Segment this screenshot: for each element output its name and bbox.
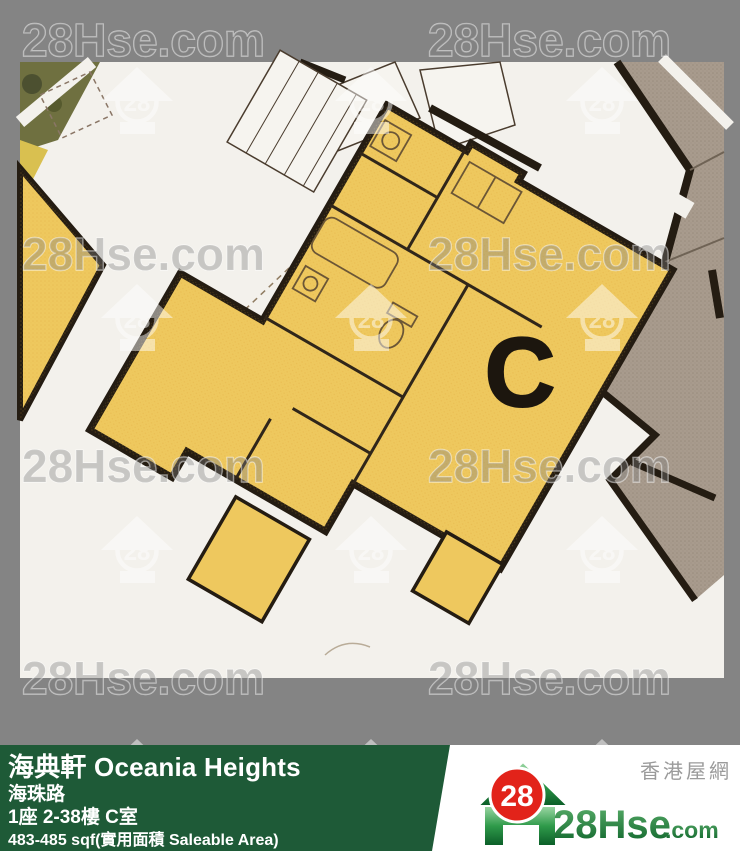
listing-floorplan-page: 28 — [0, 0, 740, 851]
watermark-text: 28Hse.com — [428, 652, 671, 704]
scanned-map: C — [20, 37, 730, 711]
logo-badge-number: 28 — [500, 780, 533, 813]
unit-label: C — [485, 317, 556, 427]
brand-suffix-text: .com — [665, 817, 719, 843]
site-name-chinese: 香港屋網 — [640, 760, 732, 783]
site-logo[interactable]: 28 香港屋網 28Hse .com — [432, 745, 740, 851]
property-info-band: 海典軒 Oceania Heights 海珠路 1座 2-38樓 C室 483-… — [0, 745, 460, 851]
info-bar: 海典軒 Oceania Heights 海珠路 1座 2-38樓 C室 483-… — [0, 745, 740, 851]
watermark-text: 28Hse.com — [22, 228, 265, 280]
watermark-text: 28Hse.com — [22, 14, 265, 66]
floorplan-svg: 28 — [0, 0, 740, 745]
property-block-floor-unit: 1座 2-38樓 C室 — [8, 802, 138, 829]
property-area: 483-485 sqf(實用面積 Saleable Area) — [8, 826, 279, 850]
watermark-text: 28Hse.com — [428, 228, 671, 280]
watermark-text: 28Hse.com — [22, 652, 265, 704]
brand-text: 28Hse — [553, 803, 671, 847]
watermark-text: 28Hse.com — [22, 440, 265, 492]
floorplan-image: 28 — [0, 0, 740, 745]
watermark-text: 28Hse.com — [428, 440, 671, 492]
watermark-text: 28Hse.com — [428, 14, 671, 66]
